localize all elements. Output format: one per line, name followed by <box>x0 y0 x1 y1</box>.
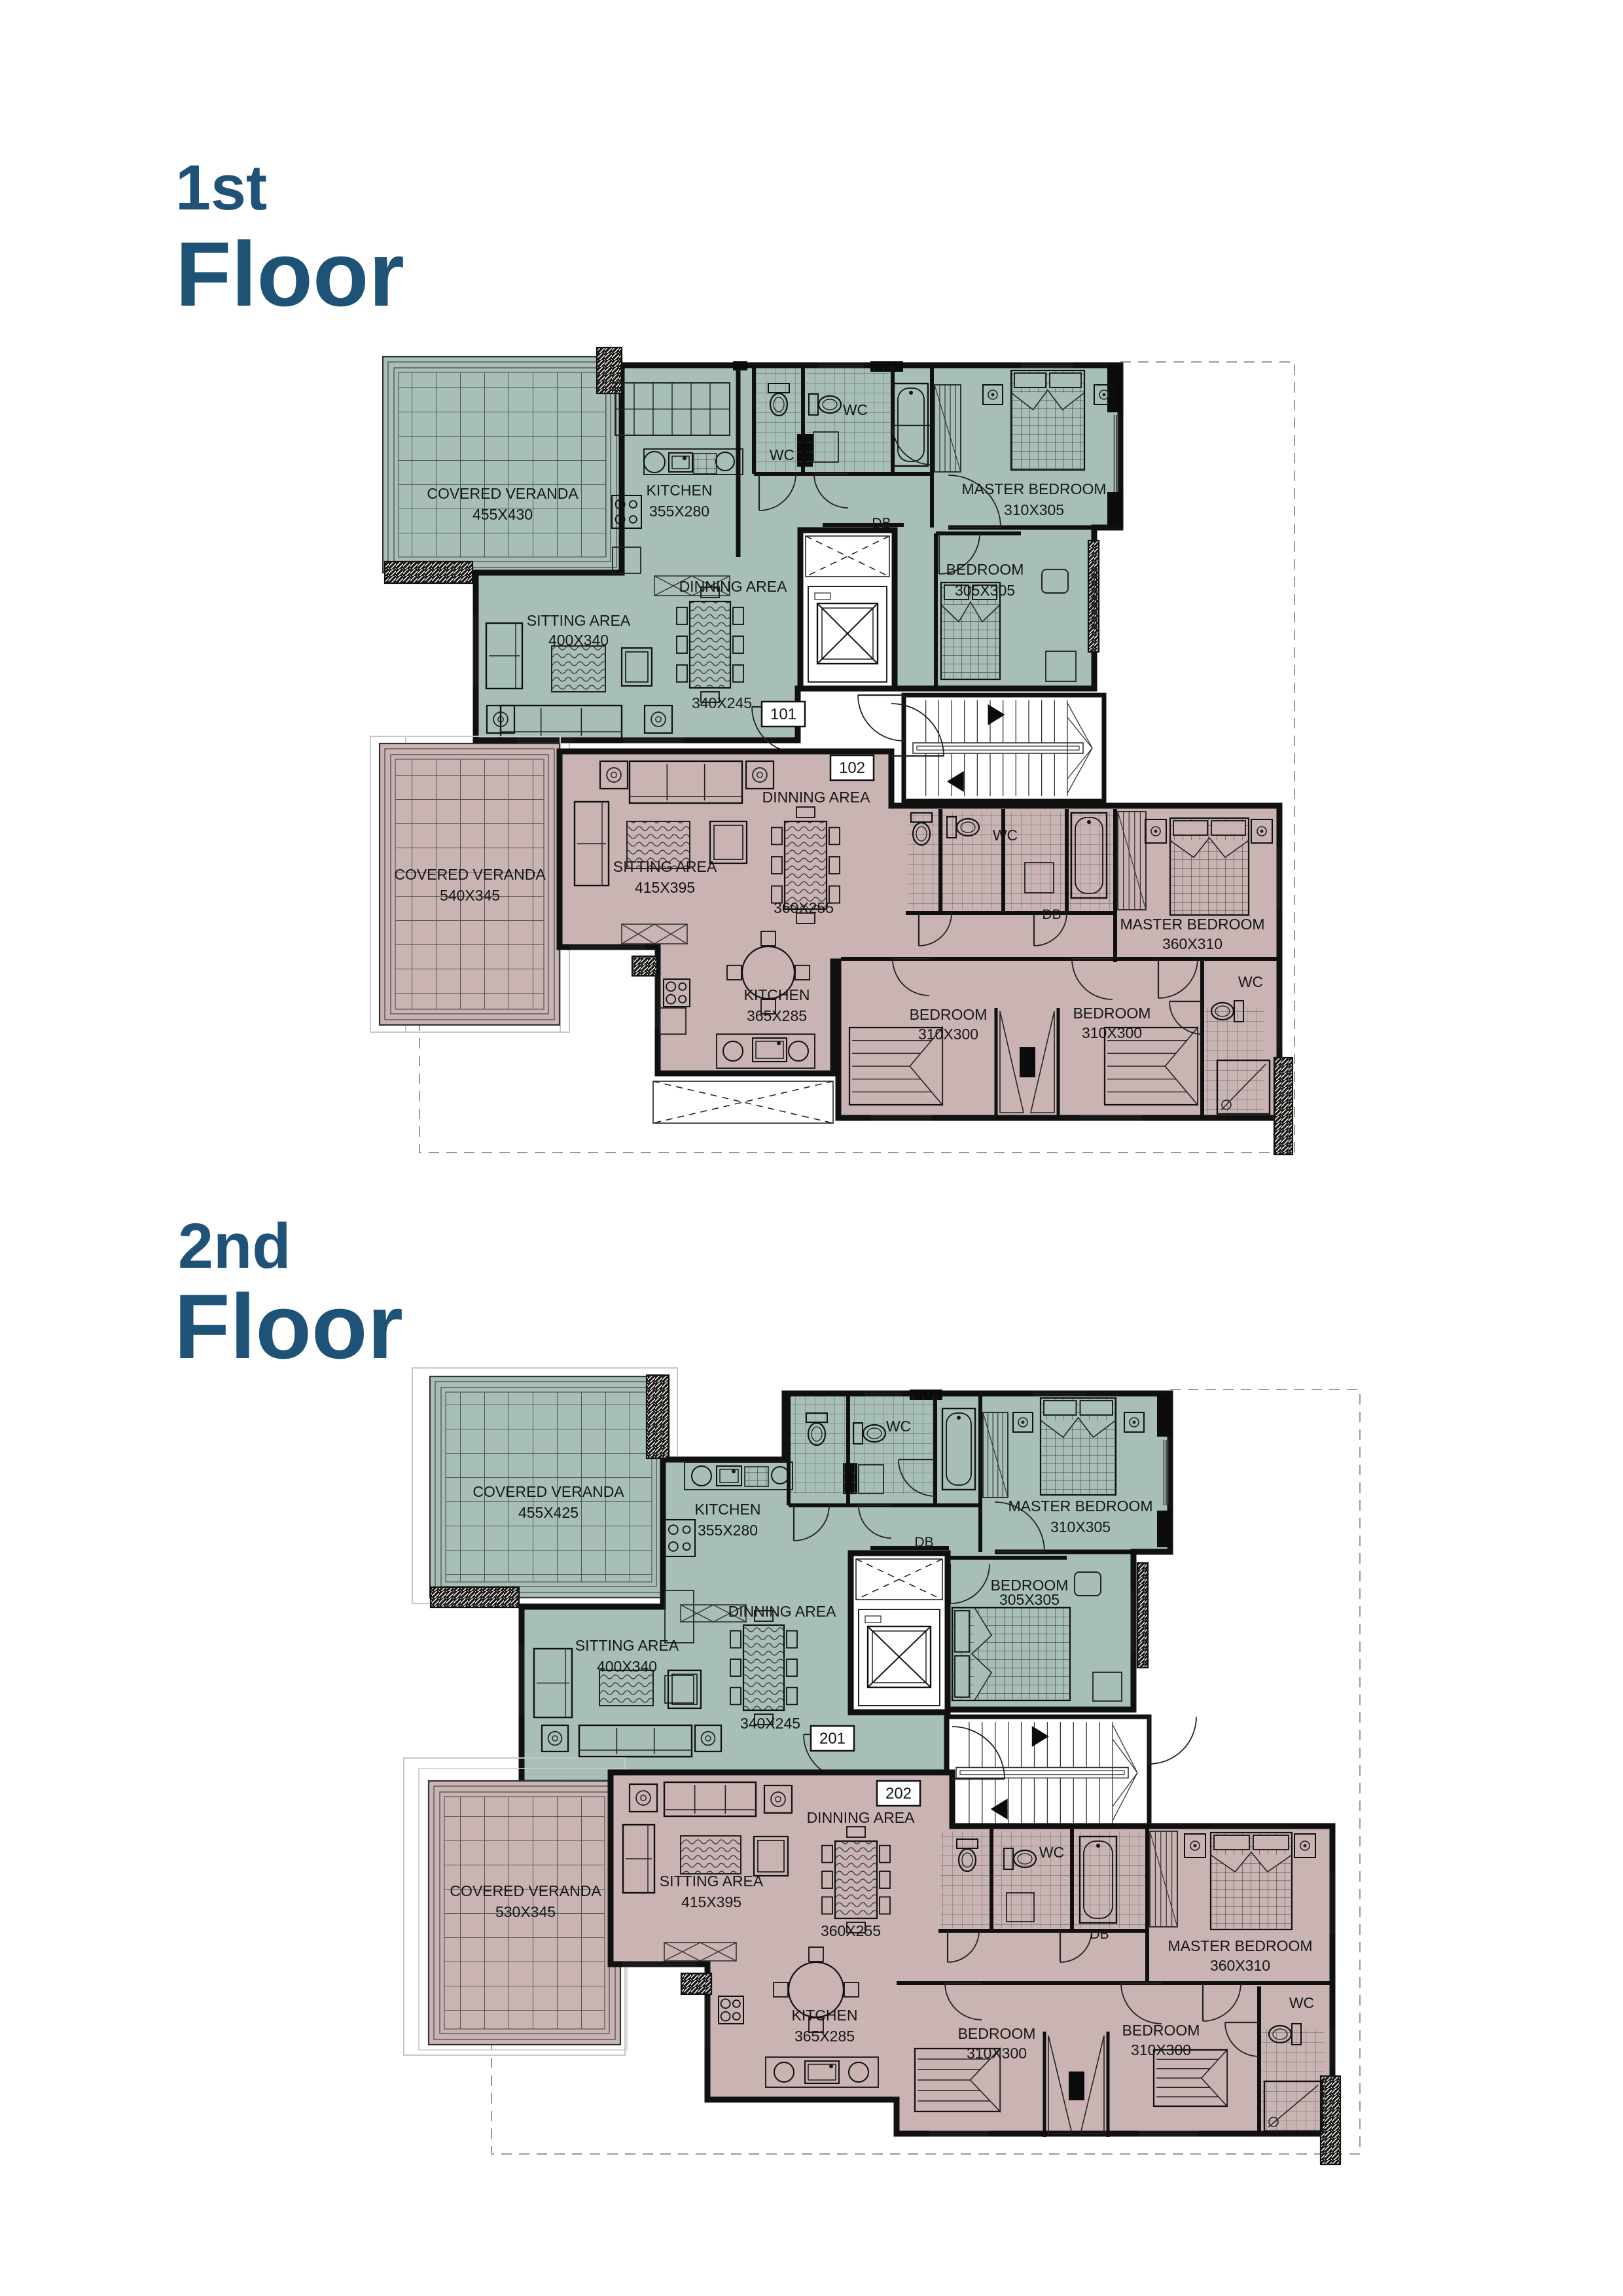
svg-text:400X340: 400X340 <box>597 1658 657 1675</box>
svg-text:415X395: 415X395 <box>681 1893 741 1910</box>
svg-text:202: 202 <box>885 1785 912 1803</box>
svg-text:400X340: 400X340 <box>548 632 609 649</box>
svg-text:BEDROOM: BEDROOM <box>946 561 1024 578</box>
svg-text:415X395: 415X395 <box>635 879 695 896</box>
svg-text:WC: WC <box>993 827 1018 844</box>
svg-text:MASTER BEDROOM: MASTER BEDROOM <box>1168 1937 1312 1954</box>
svg-text:KITCHEN: KITCHEN <box>744 986 810 1003</box>
svg-text:340X245: 340X245 <box>740 1715 800 1732</box>
svg-text:DB: DB <box>1042 907 1061 922</box>
svg-text:360X310: 360X310 <box>1210 1957 1270 1974</box>
svg-text:360X255: 360X255 <box>821 1922 881 1939</box>
svg-text:KITCHEN: KITCHEN <box>695 1501 761 1518</box>
svg-text:310X300: 310X300 <box>918 1026 978 1043</box>
svg-text:540X345: 540X345 <box>440 887 500 904</box>
svg-text:310X300: 310X300 <box>1131 2041 1191 2058</box>
svg-text:201: 201 <box>819 1730 846 1748</box>
svg-text:MASTER BEDROOM: MASTER BEDROOM <box>1008 1498 1152 1515</box>
svg-text:DINNING AREA: DINNING AREA <box>728 1603 837 1620</box>
svg-text:455X425: 455X425 <box>518 1504 579 1521</box>
svg-text:MASTER BEDROOM: MASTER BEDROOM <box>961 480 1106 497</box>
svg-text:365X285: 365X285 <box>794 2028 855 2045</box>
svg-text:310X300: 310X300 <box>1082 1024 1142 1041</box>
svg-text:DB: DB <box>914 1535 933 1550</box>
svg-text:DB: DB <box>1090 1927 1109 1942</box>
svg-text:305X305: 305X305 <box>999 1591 1060 1608</box>
svg-text:340X245: 340X245 <box>692 694 752 711</box>
svg-text:SITTING AREA: SITTING AREA <box>660 1873 764 1890</box>
svg-text:BEDROOM: BEDROOM <box>958 2025 1036 2042</box>
svg-text:BEDROOM: BEDROOM <box>1073 1005 1151 1022</box>
svg-text:WC: WC <box>1289 1994 1314 2011</box>
svg-text:KITCHEN: KITCHEN <box>792 2007 858 2024</box>
svg-text:DINNING AREA: DINNING AREA <box>762 789 871 806</box>
svg-text:COVERED VERANDA: COVERED VERANDA <box>450 1882 601 1899</box>
svg-text:101: 101 <box>770 706 796 723</box>
svg-text:310X305: 310X305 <box>1050 1518 1111 1535</box>
svg-text:COVERED VERANDA: COVERED VERANDA <box>473 1483 624 1500</box>
svg-text:SITTING AREA: SITTING AREA <box>613 858 717 875</box>
svg-text:310X300: 310X300 <box>967 2045 1027 2062</box>
svg-text:455X430: 455X430 <box>473 506 533 523</box>
svg-text:WC: WC <box>843 401 868 418</box>
svg-text:WC: WC <box>1238 973 1263 990</box>
svg-text:360X255: 360X255 <box>774 899 834 916</box>
svg-text:MASTER BEDROOM: MASTER BEDROOM <box>1120 916 1264 933</box>
svg-text:530X345: 530X345 <box>495 1903 556 1920</box>
svg-text:DINNING AREA: DINNING AREA <box>807 1809 916 1826</box>
svg-text:365X285: 365X285 <box>747 1007 807 1024</box>
svg-text:SITTING AREA: SITTING AREA <box>575 1637 679 1654</box>
svg-text:COVERED VERANDA: COVERED VERANDA <box>427 485 579 502</box>
svg-text:DINNING AREA: DINNING AREA <box>679 578 788 595</box>
svg-text:355X280: 355X280 <box>698 1522 758 1539</box>
svg-text:310X305: 310X305 <box>1004 501 1064 518</box>
svg-text:SITTING AREA: SITTING AREA <box>527 612 631 629</box>
svg-text:BEDROOM: BEDROOM <box>910 1006 988 1023</box>
svg-text:102: 102 <box>839 759 865 777</box>
svg-text:KITCHEN: KITCHEN <box>647 482 713 499</box>
svg-text:WC: WC <box>1039 1844 1064 1861</box>
svg-text:355X280: 355X280 <box>649 503 709 520</box>
svg-text:360X310: 360X310 <box>1162 935 1222 952</box>
svg-text:COVERED VERANDA: COVERED VERANDA <box>394 866 546 883</box>
svg-text:305X305: 305X305 <box>955 582 1015 599</box>
svg-text:WC: WC <box>886 1418 911 1435</box>
svg-text:WC: WC <box>770 446 794 463</box>
svg-text:BEDROOM: BEDROOM <box>1122 2022 1200 2039</box>
